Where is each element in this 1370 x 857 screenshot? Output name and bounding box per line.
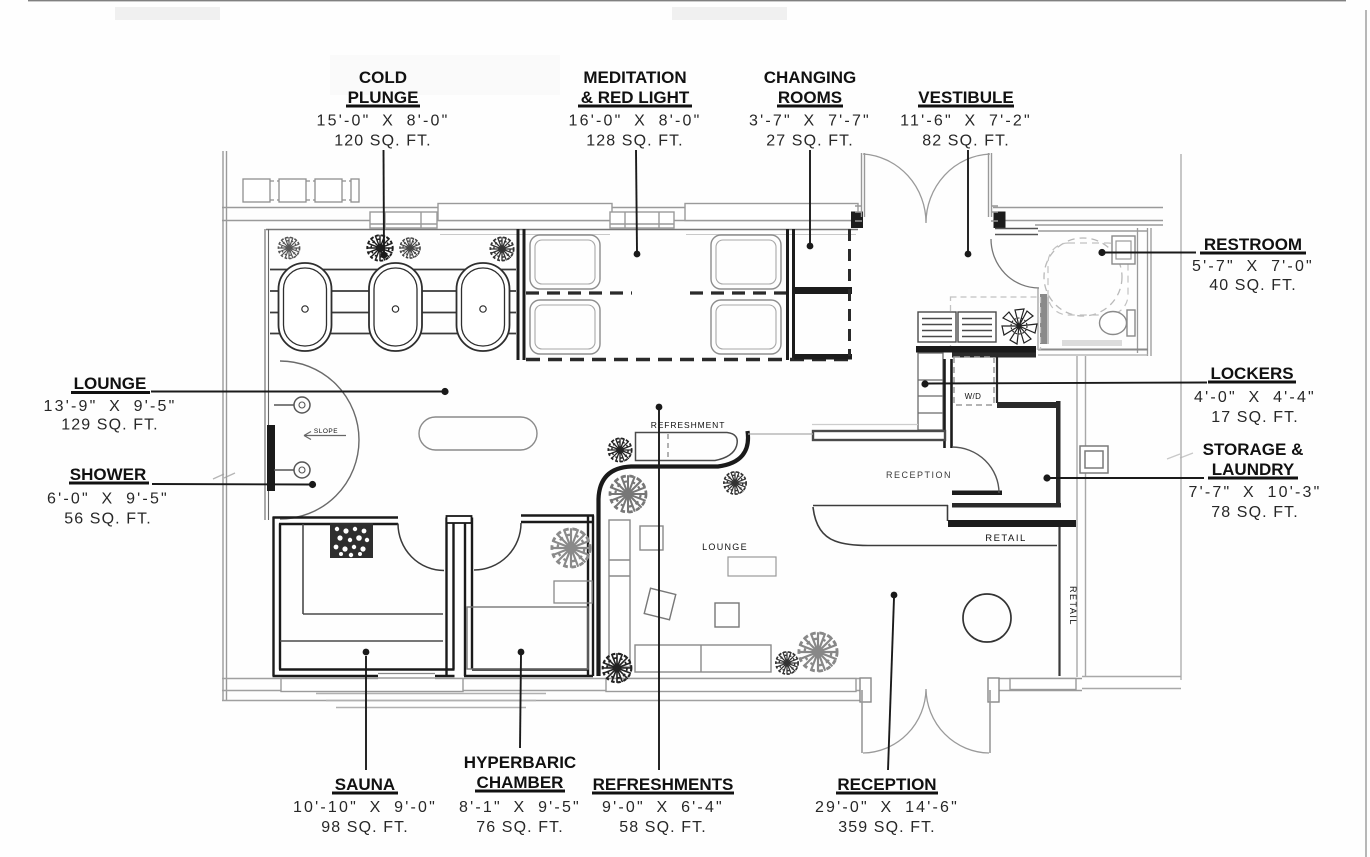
svg-text:13'-9" X 9'-5": 13'-9" X 9'-5" (44, 398, 177, 415)
svg-text:27 SQ. FT.: 27 SQ. FT. (766, 133, 853, 150)
svg-text:COLD: COLD (359, 68, 407, 87)
svg-text:CHAMBER: CHAMBER (477, 773, 564, 792)
svg-text:6'-0" X 9'-5": 6'-0" X 9'-5" (47, 491, 169, 508)
svg-text:17 SQ. FT.: 17 SQ. FT. (1211, 409, 1298, 426)
svg-text:ROOMS: ROOMS (778, 88, 842, 107)
svg-text:4'-0" X 4'-4": 4'-0" X 4'-4" (1194, 389, 1316, 406)
svg-text:REFRESHMENT: REFRESHMENT (651, 420, 726, 430)
svg-text:40 SQ. FT.: 40 SQ. FT. (1209, 277, 1296, 294)
svg-text:VESTIBULE: VESTIBULE (918, 88, 1013, 107)
svg-text:& RED LIGHT: & RED LIGHT (581, 88, 690, 107)
svg-text:RESTROOM: RESTROOM (1204, 235, 1302, 254)
svg-text:SAUNA: SAUNA (335, 775, 395, 794)
svg-text:359 SQ. FT.: 359 SQ. FT. (838, 819, 935, 836)
svg-text:RETAIL: RETAIL (985, 533, 1027, 544)
svg-text:SLOPE: SLOPE (314, 428, 338, 435)
svg-text:15'-0" X 8'-0": 15'-0" X 8'-0" (317, 113, 450, 130)
svg-text:5'-7" X 7'-0": 5'-7" X 7'-0" (1192, 258, 1314, 275)
svg-text:RECEPTION: RECEPTION (886, 470, 952, 480)
svg-text:RECEPTION: RECEPTION (837, 775, 936, 794)
svg-text:7'-7" X 10'-3": 7'-7" X 10'-3" (1189, 484, 1322, 501)
svg-text:LOCKERS: LOCKERS (1210, 364, 1293, 383)
svg-text:58 SQ. FT.: 58 SQ. FT. (619, 819, 706, 836)
svg-text:8'-1" X 9'-5": 8'-1" X 9'-5" (459, 799, 581, 816)
svg-text:LAUNDRY: LAUNDRY (1212, 460, 1295, 479)
svg-text:CHANGING: CHANGING (764, 68, 857, 87)
svg-text:LOUNGE: LOUNGE (702, 542, 748, 552)
svg-text:128 SQ. FT.: 128 SQ. FT. (586, 133, 683, 150)
svg-text:STORAGE &: STORAGE & (1203, 440, 1304, 459)
svg-text:11'-6" X 7'-2": 11'-6" X 7'-2" (900, 113, 1032, 130)
svg-text:9'-0" X 6'-4": 9'-0" X 6'-4" (602, 799, 724, 816)
svg-text:56 SQ. FT.: 56 SQ. FT. (64, 511, 151, 528)
svg-text:82 SQ. FT.: 82 SQ. FT. (922, 133, 1009, 150)
svg-text:MEDITATION: MEDITATION (583, 68, 686, 87)
svg-text:98 SQ. FT.: 98 SQ. FT. (321, 819, 408, 836)
svg-text:W/D: W/D (965, 392, 982, 401)
svg-text:SHOWER: SHOWER (70, 465, 147, 484)
svg-text:29'-0" X 14'-6": 29'-0" X 14'-6" (815, 799, 959, 816)
svg-text:REFRESHMENTS: REFRESHMENTS (593, 775, 734, 794)
svg-text:PLUNGE: PLUNGE (348, 88, 419, 107)
svg-text:3'-7" X 7'-7": 3'-7" X 7'-7" (749, 113, 871, 130)
svg-text:LOUNGE: LOUNGE (74, 374, 147, 393)
svg-text:16'-0" X 8'-0": 16'-0" X 8'-0" (569, 113, 702, 130)
svg-text:120 SQ. FT.: 120 SQ. FT. (334, 133, 431, 150)
svg-text:10'-10" X 9'-0": 10'-10" X 9'-0" (293, 799, 437, 816)
svg-text:129 SQ. FT.: 129 SQ. FT. (61, 417, 158, 434)
svg-text:RETAIL: RETAIL (1068, 586, 1078, 626)
svg-text:76 SQ. FT.: 76 SQ. FT. (476, 819, 563, 836)
svg-text:78 SQ. FT.: 78 SQ. FT. (1211, 504, 1298, 521)
svg-text:HYPERBARIC: HYPERBARIC (464, 753, 576, 772)
